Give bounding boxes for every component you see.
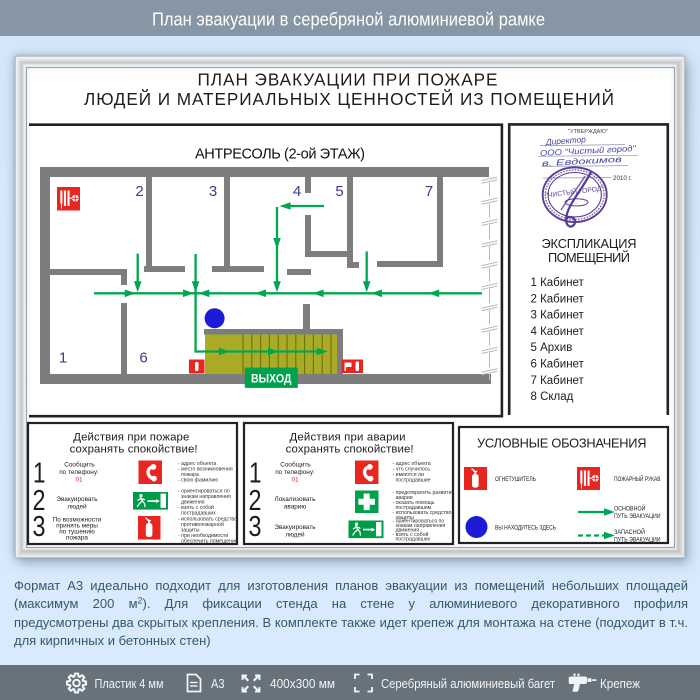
svg-text:А3: А3 [211, 676, 225, 691]
svg-text:1: 1 [59, 350, 67, 367]
svg-text:3 Кабинет: 3 Кабинет [531, 310, 585, 322]
svg-text:УСЛОВНЫЕ ОБОЗНАЧЕНИЯ: УСЛОВНЫЕ ОБОЗНАЧЕНИЯ [477, 436, 647, 451]
svg-text:по телефону:: по телефону: [59, 469, 99, 476]
svg-text:Крепеж: Крепеж [600, 676, 640, 691]
svg-text:ОСНОВНОЙ: ОСНОВНОЙ [614, 505, 646, 513]
svg-text:2010 г.: 2010 г. [613, 175, 632, 182]
svg-text:по телефону:: по телефону: [275, 469, 315, 476]
svg-text:400х300 мм: 400х300 мм [270, 676, 335, 691]
svg-text:6 Кабинет: 6 Кабинет [531, 359, 585, 371]
svg-text:4: 4 [293, 183, 301, 200]
svg-text:ПУТЬ ЭВАКУАЦИИ: ПУТЬ ЭВАКУАЦИИ [614, 538, 661, 544]
svg-text:2: 2 [135, 183, 143, 200]
svg-text:5 Архив: 5 Архив [531, 342, 573, 354]
svg-text:ВЫ НАХОДИТЕСЬ ЗДЕСЬ: ВЫ НАХОДИТЕСЬ ЗДЕСЬ [495, 526, 556, 532]
svg-text:- свою фамилию: - свою фамилию [178, 478, 218, 484]
svg-text:3: 3 [209, 183, 217, 200]
svg-text:Действия при аварии: Действия при аварии [290, 432, 406, 444]
svg-text:ПОМЕЩЕНИЙ: ПОМЕЩЕНИЙ [548, 250, 630, 265]
svg-text:2 Кабинет: 2 Кабинет [531, 293, 585, 305]
svg-text:4 Кабинет: 4 Кабинет [531, 326, 585, 338]
svg-text:ПУТЬ ЭВАКУАЦИИ: ПУТЬ ЭВАКУАЦИИ [614, 514, 661, 520]
svg-text:аварию: аварию [284, 504, 307, 511]
svg-text:обеспечить помещение: обеспечить помещение [181, 539, 238, 545]
svg-text:людей: людей [67, 503, 87, 511]
svg-text:сохранять спокойствие!: сохранять спокойствие! [70, 443, 198, 455]
svg-text:ВЫХОД: ВЫХОД [251, 372, 292, 386]
svg-text:1 Кабинет: 1 Кабинет [531, 277, 585, 289]
svg-text:ЭКСПЛИКАЦИЯ: ЭКСПЛИКАЦИЯ [542, 236, 637, 251]
svg-text:Действия при пожаре: Действия при пожаре [73, 432, 189, 444]
svg-text:8 Склад: 8 Склад [531, 391, 574, 403]
svg-text:01: 01 [75, 477, 83, 484]
svg-text:ЗАПАСНОЙ: ЗАПАСНОЙ [614, 528, 645, 536]
svg-text:сохранять спокойствие!: сохранять спокойствие! [286, 443, 414, 455]
svg-text:3: 3 [249, 511, 262, 543]
svg-text:ПОЖАРНЫЙ РУКАВ: ПОЖАРНЫЙ РУКАВ [614, 475, 661, 483]
svg-text:пострадавшие: пострадавшие [396, 478, 431, 484]
svg-text:ОГНЕТУШИТЕЛЬ: ОГНЕТУШИТЕЛЬ [495, 477, 536, 483]
svg-text:7: 7 [425, 183, 433, 200]
svg-text:Пластик 4 мм: Пластик 4 мм [95, 676, 164, 691]
svg-text:3: 3 [33, 511, 46, 543]
svg-text:Сообщить: Сообщить [280, 461, 311, 469]
svg-text:01: 01 [291, 477, 299, 484]
svg-text:6: 6 [139, 350, 147, 367]
svg-text:Эвакуировать: Эвакуировать [274, 524, 316, 531]
svg-text:ПЛАН ЭВАКУАЦИИ ПРИ ПОЖАРЕ: ПЛАН ЭВАКУАЦИИ ПРИ ПОЖАРЕ [198, 70, 498, 90]
svg-text:Сообщить: Сообщить [64, 461, 95, 469]
svg-text:пожара: пожара [66, 535, 88, 542]
svg-text:людей: людей [285, 531, 305, 539]
svg-text:АНТРЕСОЛЬ (2-ой ЭТАЖ): АНТРЕСОЛЬ (2-ой ЭТАЖ) [195, 147, 365, 163]
svg-text:5: 5 [335, 183, 343, 200]
svg-text:Эвакуировать: Эвакуировать [56, 496, 98, 503]
svg-text:Локализовать: Локализовать [275, 496, 317, 503]
svg-text:Серебряный алюминиевый багет: Серебряный алюминиевый багет [381, 676, 555, 691]
svg-text:пострадавших: пострадавших [396, 537, 431, 543]
svg-text:ЛЮДЕЙ И МАТЕРИАЛЬНЫХ ЦЕННОСТЕЙ: ЛЮДЕЙ И МАТЕРИАЛЬНЫХ ЦЕННОСТЕЙ ИЗ ПОМЕЩЕ… [84, 89, 614, 109]
svg-text:7 Кабинет: 7 Кабинет [531, 375, 585, 387]
